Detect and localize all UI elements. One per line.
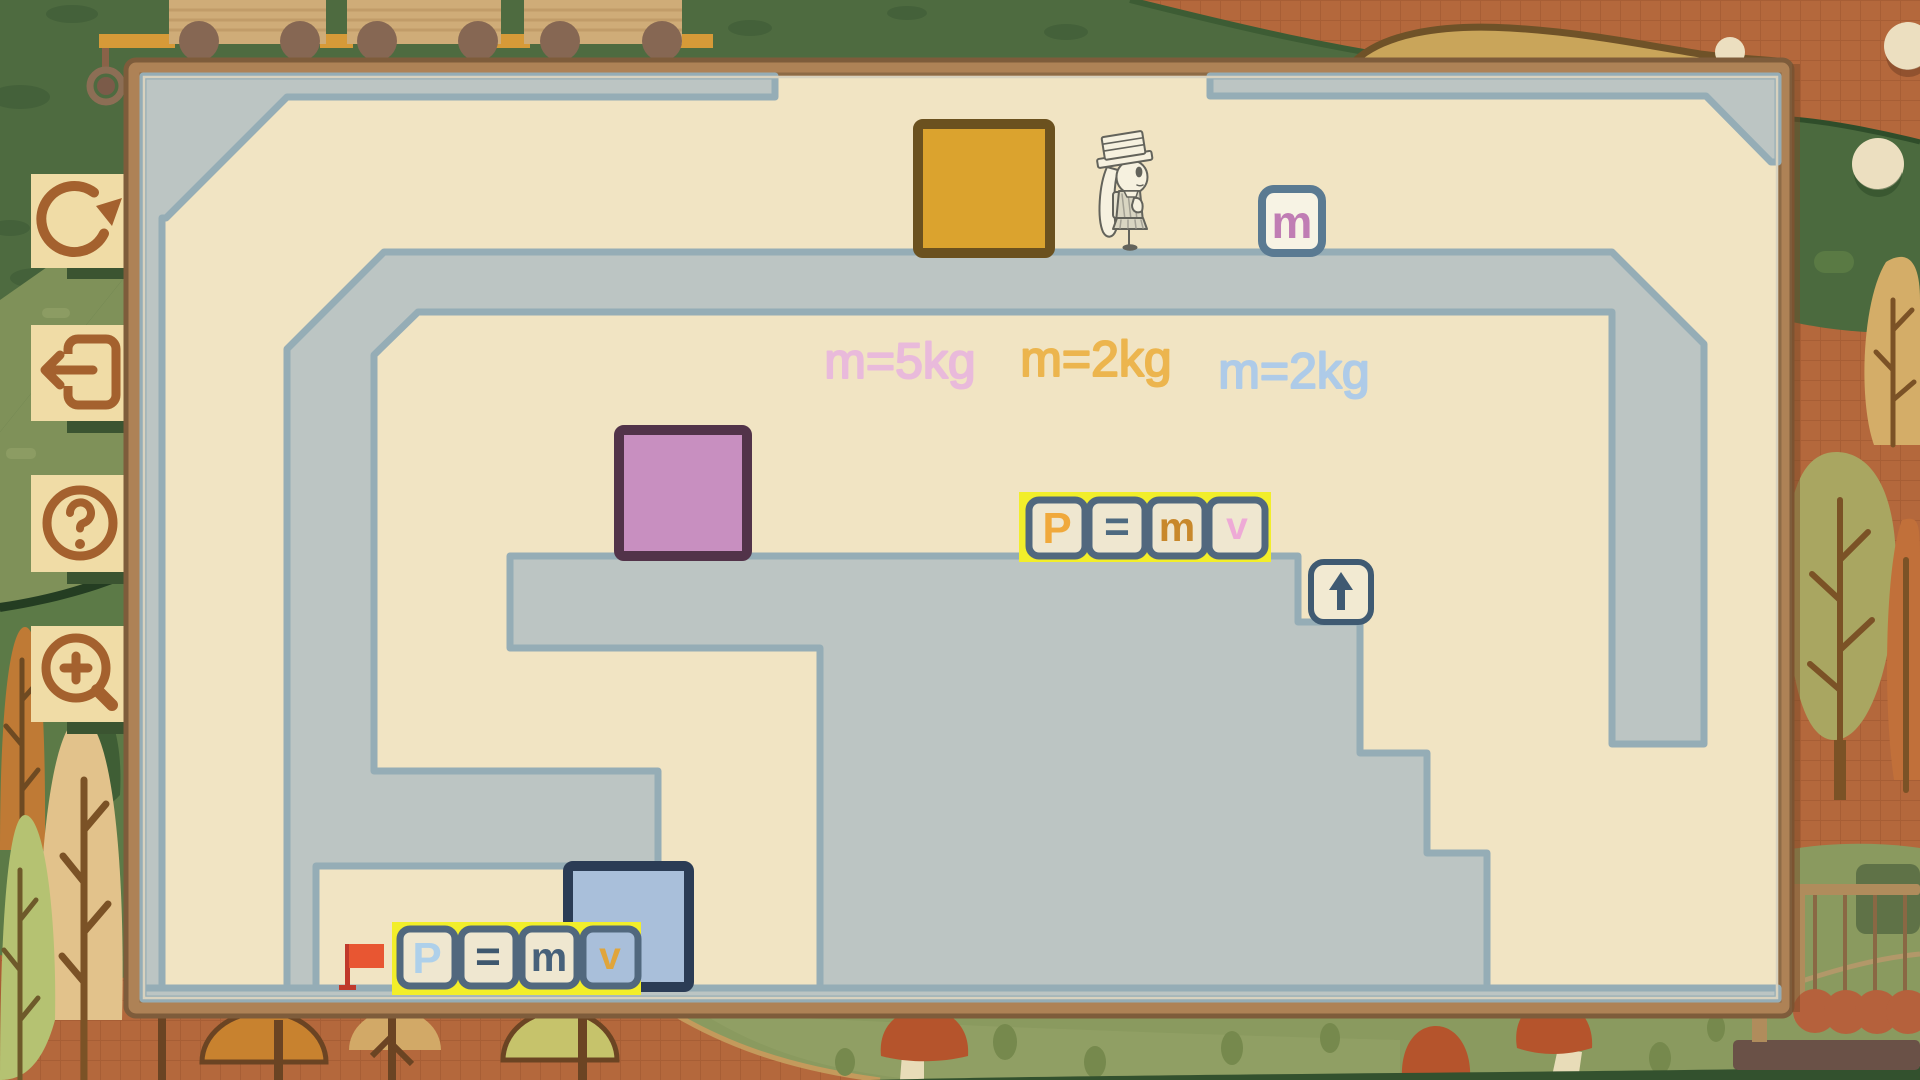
svg-text:m=2kg: m=2kg	[1020, 331, 1171, 387]
svg-text:P: P	[412, 934, 441, 983]
svg-text:m=2kg: m=2kg	[1218, 343, 1369, 399]
svg-text:=: =	[1104, 502, 1130, 551]
svg-text:m: m	[1272, 196, 1313, 248]
svg-text:=: =	[475, 932, 501, 981]
svg-text:v: v	[1226, 505, 1248, 548]
svg-text:m: m	[1159, 504, 1195, 550]
svg-text:m: m	[531, 934, 567, 980]
svg-text:m=5kg: m=5kg	[824, 333, 975, 389]
svg-text:v: v	[599, 935, 621, 978]
svg-text:P: P	[1042, 504, 1071, 553]
